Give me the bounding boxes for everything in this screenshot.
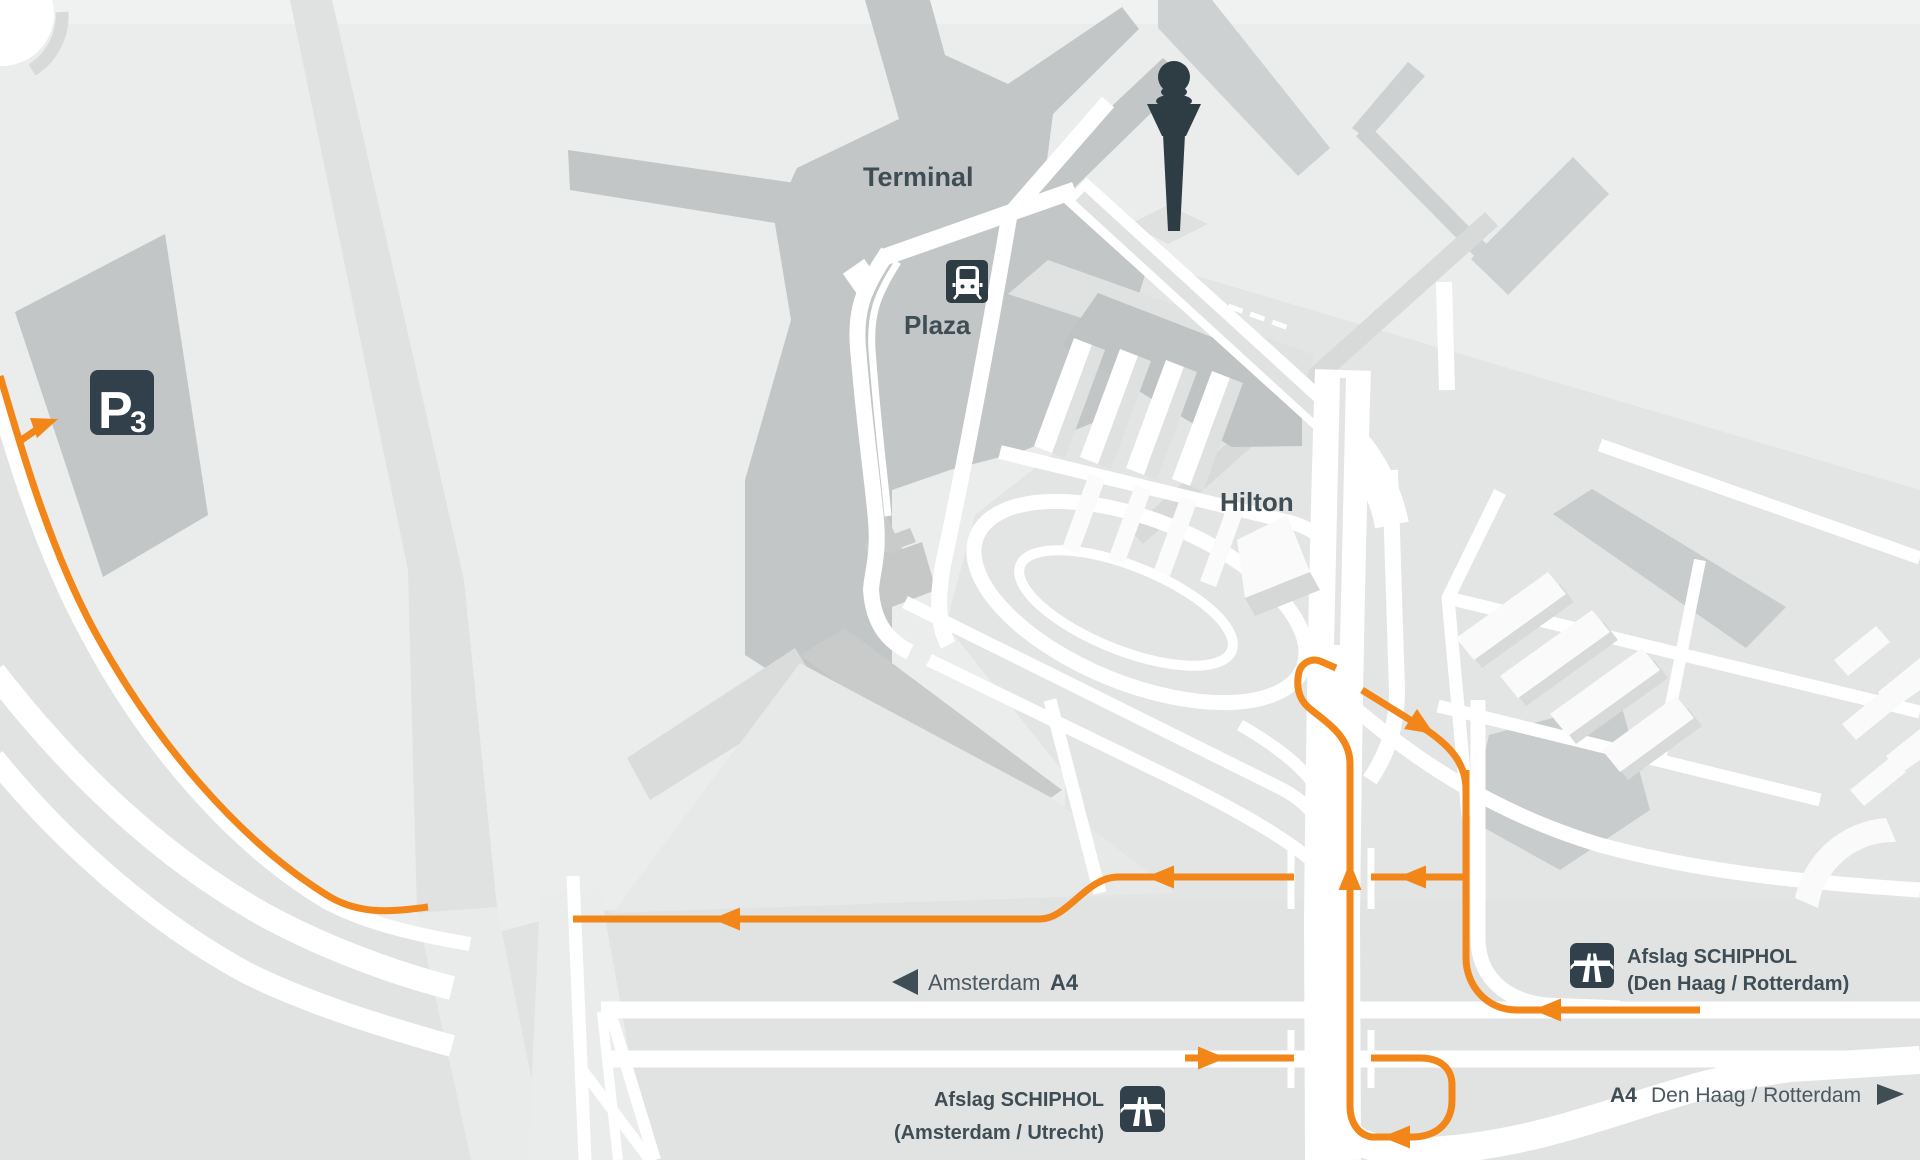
svg-text:Amsterdam: Amsterdam bbox=[928, 970, 1040, 995]
svg-text:Hilton: Hilton bbox=[1220, 487, 1294, 517]
svg-text:(Amsterdam / Utrecht): (Amsterdam / Utrecht) bbox=[894, 1122, 1104, 1144]
svg-text:P: P bbox=[98, 382, 133, 440]
svg-text:Terminal: Terminal bbox=[863, 162, 974, 192]
svg-text:Plaza: Plaza bbox=[904, 310, 971, 340]
svg-text:(Den Haag / Rotterdam): (Den Haag / Rotterdam) bbox=[1627, 973, 1849, 995]
svg-text:Afslag SCHIPHOL: Afslag SCHIPHOL bbox=[1627, 946, 1797, 968]
svg-text:Afslag SCHIPHOL: Afslag SCHIPHOL bbox=[934, 1089, 1104, 1111]
svg-text:Den Haag / Rotterdam: Den Haag / Rotterdam bbox=[1651, 1084, 1861, 1107]
svg-text:A4: A4 bbox=[1050, 970, 1079, 995]
svg-text:3: 3 bbox=[130, 406, 147, 439]
svg-text:A4: A4 bbox=[1610, 1084, 1637, 1107]
